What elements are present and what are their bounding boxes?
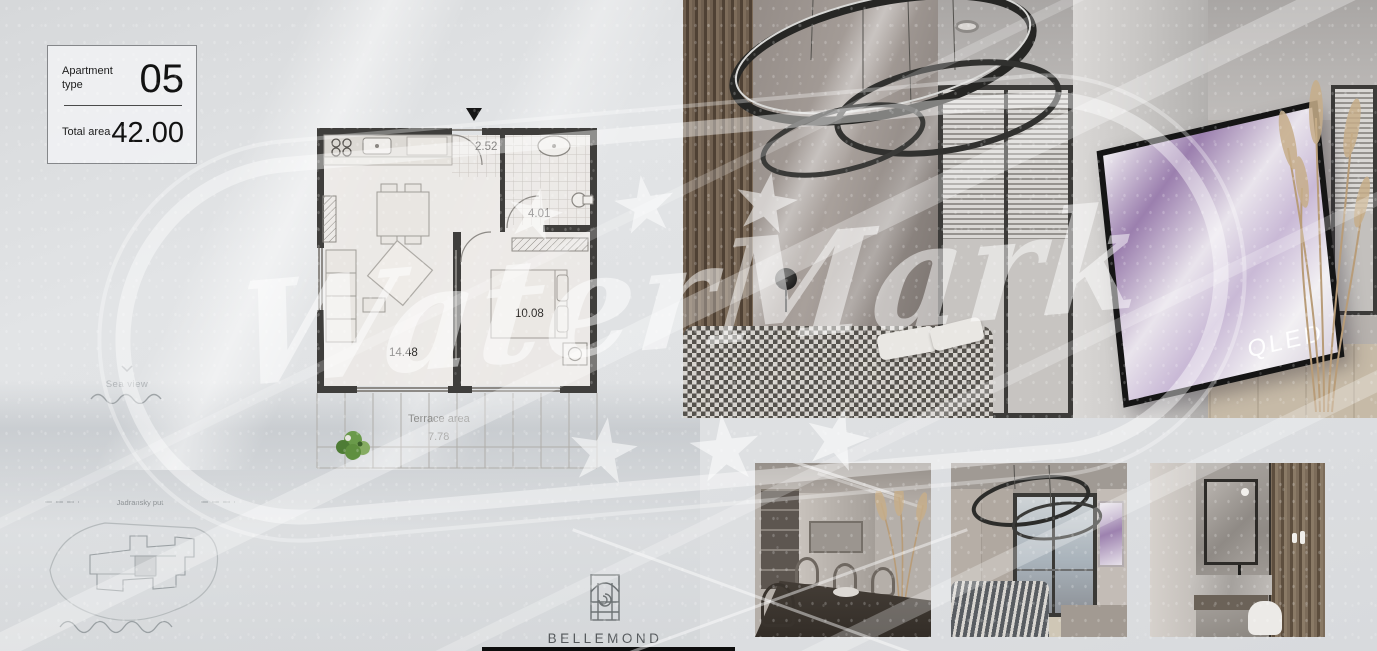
ring-chandelier <box>959 465 1109 557</box>
total-area-value: 42.00 <box>111 117 184 150</box>
area-living: 14.48 <box>389 347 418 359</box>
table-lamp <box>775 268 797 312</box>
mirror-light <box>1241 488 1249 496</box>
foreground-chair <box>761 583 795 627</box>
left-wall <box>1150 463 1196 637</box>
shower-bottle <box>1292 533 1297 543</box>
thumb-bathroom-photo <box>1150 463 1325 637</box>
chair <box>871 567 895 597</box>
marble-vanity <box>1190 575 1272 595</box>
sea-wave-icon <box>60 622 172 633</box>
mirror-cabinet <box>1204 479 1258 565</box>
thumb-bedroom-photo <box>951 463 1127 637</box>
floor-plan: 2.52 4.01 10.08 14.48 Terrace area 7.78 <box>315 100 605 475</box>
balcony-rail <box>1017 569 1093 571</box>
radiator-living <box>323 196 336 242</box>
lamp-shade <box>775 268 797 290</box>
kitchen-counter <box>324 135 452 165</box>
washing-machine <box>563 343 587 365</box>
sea-view-annotation: Sea view <box>82 360 172 409</box>
bellemond-emblem-icon <box>579 570 631 624</box>
site-plan: Jadransky put <box>35 490 235 645</box>
brand-name: BELLEMOND <box>535 631 675 646</box>
shelf-unit <box>761 489 799 589</box>
sea-view-label: Sea view <box>82 379 172 390</box>
total-area-label: Total area <box>62 126 111 140</box>
area-entry: 2.52 <box>475 141 497 153</box>
main-interior-photo: QLED <box>683 0 1377 418</box>
thumb-dining-photo <box>755 463 931 637</box>
info-card-divider <box>64 105 182 106</box>
footer-bar <box>482 647 735 651</box>
street-label: Jadransky put <box>117 498 165 507</box>
total-area-row: Total area 42.00 <box>62 110 184 156</box>
toilet <box>1248 601 1282 635</box>
entrance-marker-icon <box>466 108 482 121</box>
bed <box>491 270 568 338</box>
table-bowl <box>833 587 859 597</box>
wall-art <box>809 521 863 553</box>
bench <box>1061 605 1127 637</box>
radiator-bedroom <box>512 238 588 251</box>
brochure-page: Apartment type 05 Total area 42.00 <box>0 0 1377 651</box>
bed-striped-blanket <box>951 581 1049 637</box>
lamp-stem <box>785 290 787 312</box>
brand-logo: BELLEMOND Residence Montenegro <box>535 570 675 651</box>
area-bathroom: 4.01 <box>528 208 550 220</box>
apartment-type-label: Apartment type <box>62 65 124 93</box>
highlighted-unit <box>135 556 156 576</box>
terrace-label: Terrace area <box>408 413 471 425</box>
tree-icon <box>336 431 370 460</box>
apartment-type-value: 05 <box>140 57 185 102</box>
chevron-down-icon <box>120 365 134 373</box>
dining-table <box>377 184 429 244</box>
shower-bottle <box>1300 531 1305 544</box>
area-bedroom: 10.08 <box>515 308 544 320</box>
site-boundary <box>50 523 218 620</box>
pampas-grass <box>1258 78 1377 412</box>
terrace-area: 7.78 <box>428 431 449 443</box>
wave-icon <box>87 390 167 404</box>
apartment-type-row: Apartment type 05 <box>62 56 184 102</box>
ring-chandelier <box>693 0 1093 195</box>
chair <box>795 557 819 587</box>
apartment-info-card: Apartment type 05 Total area 42.00 <box>47 45 197 164</box>
